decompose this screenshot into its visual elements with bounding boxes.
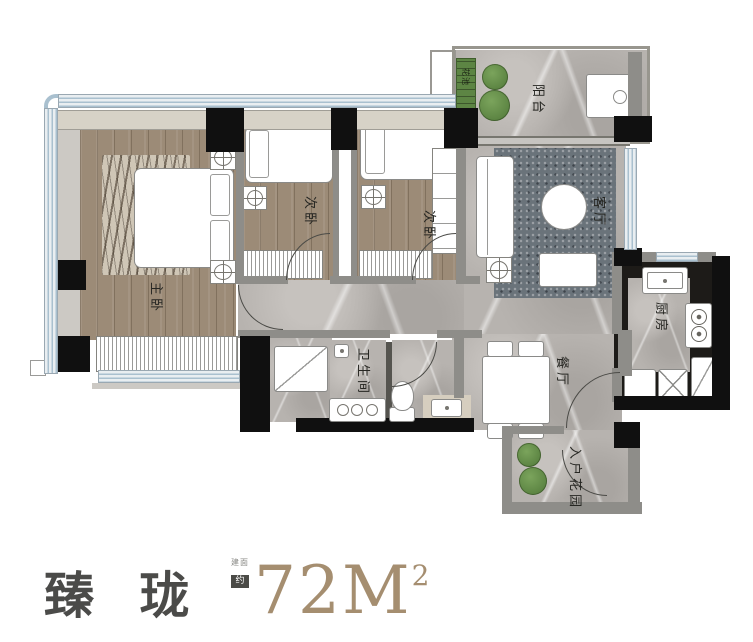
master-bedroom-label: 主卧: [148, 282, 162, 314]
project-name: 臻 珑: [44, 556, 203, 628]
area-note-badge: 约: [231, 575, 248, 588]
wall-bed3-living: [456, 142, 466, 282]
left-wall-band: [58, 130, 80, 338]
bedroom3-pillow: [365, 124, 385, 174]
bathroom-vanity: [329, 398, 386, 422]
washbasin: [431, 399, 462, 417]
column-balcony-right: [614, 116, 652, 142]
master-pillow-2: [210, 220, 230, 262]
area-note-prefix: 建面: [228, 557, 252, 568]
curtain-wall-top: [58, 94, 456, 108]
curtain-wall-corner: [44, 94, 58, 108]
master-nightstand-lamp-2: [210, 260, 236, 284]
column-left-bottom: [58, 336, 90, 372]
dining-chair-1: [487, 341, 513, 357]
bedroom3-nightstand-lamp: [361, 185, 386, 209]
shower-head-icon: [334, 344, 349, 358]
balcony-sliding-door: [458, 136, 630, 146]
corridor-wall-seg2: [330, 276, 416, 284]
entry-garden-label: 入户花园: [567, 446, 581, 510]
master-outer-wall: [92, 383, 248, 389]
floor-plan-page: 主卧 次卧 次卧 客厅 餐厅 厨房 卫生间 阳台 入户花园 花池 臻 珑 建面 …: [0, 0, 753, 642]
round-table: [541, 184, 587, 230]
bedroom2-nightstand-lamp: [243, 186, 267, 210]
dining-chair-2: [518, 341, 544, 357]
garden-plant-2: [519, 467, 547, 495]
garden-plant-1: [517, 443, 541, 467]
area-value: 72M2: [254, 540, 429, 627]
area-exponent: 2: [412, 559, 430, 592]
kitchen-label: 厨房: [653, 302, 667, 334]
column-living-window: [614, 248, 642, 266]
bedroom2-pillow: [249, 130, 269, 178]
bedroom3-label: 次卧: [421, 210, 435, 242]
master-pillow-1: [210, 174, 230, 216]
vanity-basin-circle: [337, 404, 349, 416]
balcony-label: 阳台: [530, 84, 544, 116]
area-note: 建面 约: [228, 557, 252, 588]
column-top-1: [206, 108, 244, 152]
dining-table: [482, 356, 550, 424]
wall-bed2-right: [333, 148, 339, 280]
cloak-cabinet: [274, 346, 328, 392]
master-wardrobe: [96, 336, 238, 372]
corridor-wall-seg3: [456, 276, 480, 284]
dining-room-label: 餐厅: [554, 356, 568, 388]
kitchen-bottom-wall: [614, 396, 730, 410]
kitchen-window: [656, 252, 698, 262]
bathroom-right-wall: [454, 336, 464, 398]
column-nook-left: [240, 336, 270, 432]
wall-master-bed2: [236, 148, 244, 282]
curtain-wall-left: [44, 108, 58, 374]
corridor-wall-seg1: [236, 276, 288, 284]
kitchen-right-wall: [712, 256, 730, 402]
master-bedroom-window: [98, 370, 240, 383]
balcony-right-wall: [628, 52, 642, 122]
area-number: 72M: [254, 552, 412, 629]
vanity-basin-circle: [351, 404, 363, 416]
kitchen-sink: [642, 267, 688, 294]
column-top-2: [331, 108, 357, 150]
column-planter-base: [454, 110, 478, 148]
kitchen-left-wall-a: [612, 262, 622, 334]
living-room-window: [624, 148, 637, 250]
vanity-basin-circle: [366, 404, 378, 416]
living-floor-lamp: [486, 257, 512, 283]
kitchen-stove: [685, 303, 712, 348]
bedroom2-label: 次卧: [302, 196, 316, 228]
planter-label: 花池: [461, 68, 470, 86]
wall-bed3-left: [351, 148, 357, 280]
top-wall-band: [58, 110, 458, 130]
living-room-label: 客厅: [591, 196, 605, 228]
coffee-table: [539, 253, 597, 287]
sofa: [476, 156, 514, 258]
bathroom-label: 卫生间: [355, 348, 369, 396]
column-left-mid: [58, 260, 86, 290]
